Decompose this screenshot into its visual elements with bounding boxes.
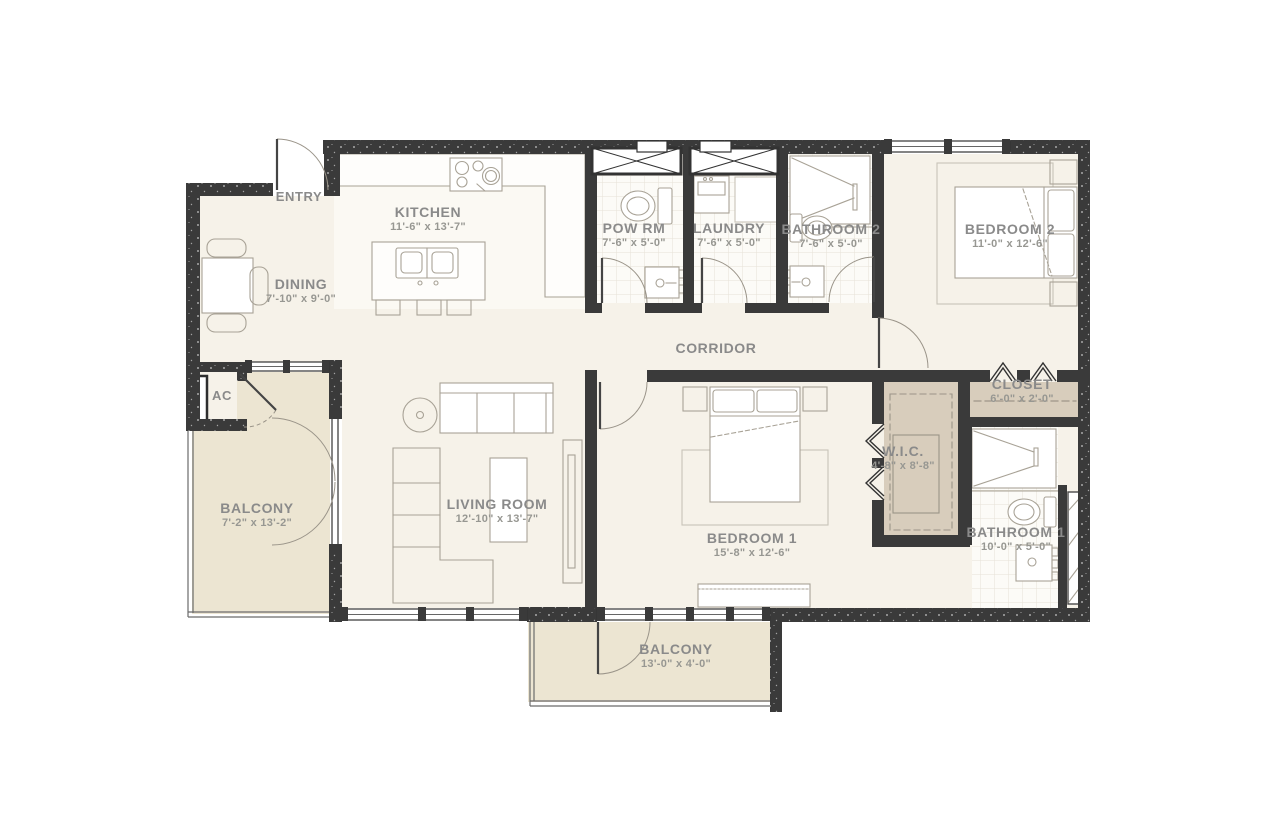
kitchen-island <box>372 242 485 300</box>
laundry-counter <box>735 177 777 222</box>
sofa <box>440 383 553 433</box>
shower-bathroom1 <box>972 429 1058 491</box>
dresser-bedroom1 <box>698 584 810 607</box>
toilet-bathroom2 <box>790 214 832 242</box>
coffee-table <box>490 458 527 542</box>
floor-plan-drawing <box>0 0 1280 826</box>
floor-plan: ENTRY KITCHEN 11'-6" x 13'-7" DINING 7'-… <box>0 0 1280 826</box>
bed-2 <box>955 187 1077 278</box>
bed-1 <box>710 387 800 502</box>
vanity-bathroom1 <box>1016 545 1058 581</box>
stove <box>450 158 502 191</box>
vanity-bathroom2 <box>784 266 824 297</box>
vanity-powder-room <box>645 267 685 298</box>
washer <box>694 176 729 213</box>
toilet-bathroom1 <box>1008 497 1056 527</box>
toilet-powder-room <box>621 188 672 224</box>
dining-table <box>202 258 253 313</box>
closet-floor <box>970 382 1078 417</box>
wic-floor <box>884 382 958 535</box>
door-panel-bathroom1 <box>1068 492 1079 604</box>
